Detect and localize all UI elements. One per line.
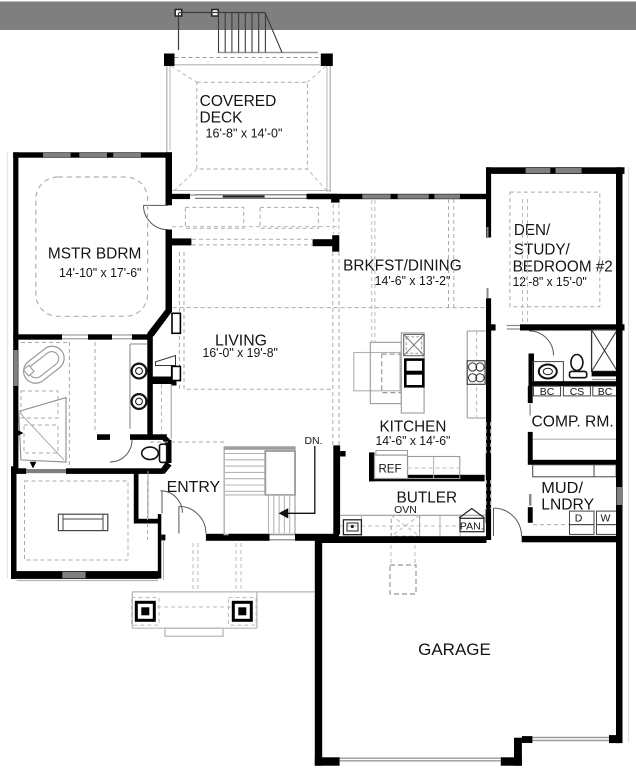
svg-text:ENTRY: ENTRY — [167, 479, 221, 496]
svg-text:CS: CS — [570, 386, 585, 398]
svg-text:COMP. RM.: COMP. RM. — [532, 413, 614, 430]
svg-text:DEN/: DEN/ — [514, 222, 551, 239]
svg-text:12'-8" x 15'-0": 12'-8" x 15'-0" — [513, 275, 587, 289]
svg-text:OVN: OVN — [394, 504, 417, 516]
svg-text:D: D — [575, 513, 583, 525]
svg-text:14'-6" x 13'-2": 14'-6" x 13'-2" — [375, 274, 451, 288]
svg-text:16'-0" x 19'-8": 16'-0" x 19'-8" — [203, 346, 278, 360]
svg-text:DN.: DN. — [304, 435, 322, 447]
svg-text:GARAGE: GARAGE — [418, 640, 491, 659]
svg-text:14'-6" x 14'-6": 14'-6" x 14'-6" — [375, 434, 450, 448]
svg-text:BC: BC — [540, 386, 555, 398]
svg-text:BRKFST/DINING: BRKFST/DINING — [343, 257, 462, 274]
svg-text:DECK: DECK — [199, 110, 243, 127]
svg-text:PAN.: PAN. — [460, 521, 484, 533]
svg-text:14'-10" x 17'-6": 14'-10" x 17'-6" — [59, 266, 142, 280]
svg-text:W: W — [601, 513, 611, 525]
svg-text:KITCHEN: KITCHEN — [379, 418, 446, 435]
svg-text:MUD/: MUD/ — [541, 480, 583, 497]
svg-text:COVERED: COVERED — [200, 93, 277, 110]
svg-text:BC: BC — [598, 386, 613, 398]
svg-text:MSTR BDRM: MSTR BDRM — [48, 246, 142, 263]
svg-text:REF: REF — [379, 464, 402, 476]
svg-text:16'-8" x 14'-0": 16'-8" x 14'-0" — [206, 127, 283, 141]
